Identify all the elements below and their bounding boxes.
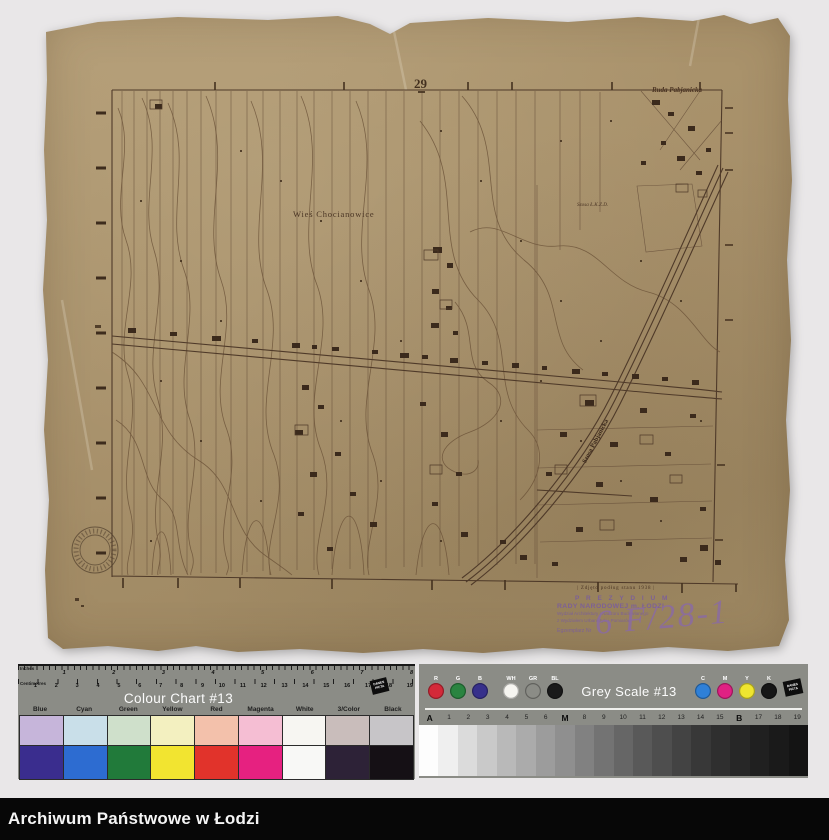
archive-footer: Archiwum Państwowe w Łodzi bbox=[0, 798, 829, 840]
circular-stamp bbox=[72, 527, 118, 573]
grey-step bbox=[614, 725, 633, 776]
centimetres-label: Centimetres bbox=[20, 681, 46, 686]
inch-scale: 12345678 bbox=[18, 666, 415, 679]
paper-background: 29 Ruda Pabjanicka Wieś Chocianowice Szo… bbox=[38, 10, 795, 655]
blue-dot-icon bbox=[472, 683, 488, 699]
ruler: Inches 12345678 Centimetres 123456789101… bbox=[18, 664, 415, 692]
dot-white: WH bbox=[500, 676, 522, 699]
red-dot-icon bbox=[428, 683, 444, 699]
swatch-dark bbox=[370, 746, 413, 779]
survey-note: | Zdjęto podług stanu 1938 | bbox=[577, 586, 655, 591]
grey-scale-header: R G B WH GR BL Grey Scale #13 C M Y K DA… bbox=[419, 664, 808, 706]
village-label: Wieś Chocianowice bbox=[293, 209, 374, 219]
key-dot-icon bbox=[761, 683, 777, 699]
grey-step bbox=[516, 725, 535, 776]
grey-dot-icon bbox=[525, 683, 541, 699]
dot-green: G bbox=[447, 676, 469, 699]
colour-chart-card: Inches 12345678 Centimetres 123456789101… bbox=[18, 664, 415, 779]
parcel-lines bbox=[122, 91, 722, 578]
swatch-light bbox=[239, 716, 282, 745]
swatch-light bbox=[151, 716, 194, 745]
colour-chart-title: Colour Chart #13 bbox=[0, 691, 377, 706]
grey-step bbox=[594, 725, 613, 776]
swatch-light bbox=[283, 716, 326, 745]
grey-step bbox=[555, 725, 574, 776]
dot-yellow: Y bbox=[736, 676, 758, 699]
map-sheet: 29 Ruda Pabjanicka Wieś Chocianowice Szo… bbox=[38, 10, 795, 655]
grey-step bbox=[419, 725, 438, 776]
dot-black: BL bbox=[544, 676, 566, 699]
map-drawing: 29 Ruda Pabjanicka Wieś Chocianowice Szo… bbox=[38, 10, 795, 655]
dot-key: K bbox=[758, 676, 780, 699]
inches-label: Inches bbox=[20, 666, 34, 671]
black-dot-icon bbox=[547, 683, 563, 699]
white-dot-icon bbox=[503, 683, 519, 699]
grey-step bbox=[711, 725, 730, 776]
grey-step bbox=[575, 725, 594, 776]
swatch-dark bbox=[20, 746, 63, 779]
danes-picta-logo: DANES PICTA bbox=[370, 677, 390, 695]
swatch-light bbox=[20, 716, 63, 745]
sheet-number: 29 bbox=[414, 76, 428, 91]
frame-ticks bbox=[96, 113, 106, 553]
grey-step bbox=[497, 725, 516, 776]
swatch-light bbox=[64, 716, 107, 745]
grey-scale-labels: A123456M89101112131415B171819 bbox=[419, 710, 808, 725]
grey-step bbox=[458, 725, 477, 776]
dot-cyan: C bbox=[692, 676, 714, 699]
swatch-dark bbox=[326, 746, 369, 779]
building-outlines bbox=[150, 100, 707, 530]
swatch-dark bbox=[195, 746, 238, 779]
swatch-dark bbox=[108, 746, 151, 779]
swatch-light bbox=[108, 716, 151, 745]
yellow-dot-icon bbox=[739, 683, 755, 699]
grey-step bbox=[652, 725, 671, 776]
grey-step bbox=[769, 725, 788, 776]
corner-label: Ruda Pabjanicka bbox=[651, 86, 702, 94]
stamp-line5: Egzemplarz Nr bbox=[557, 628, 592, 634]
grey-gradient-strip bbox=[419, 725, 808, 776]
danes-picta-logo: DANES PICTA bbox=[783, 678, 804, 696]
grey-step bbox=[536, 725, 555, 776]
swatch-dark bbox=[239, 746, 282, 779]
diagonal-road bbox=[462, 165, 728, 585]
swatch-light bbox=[370, 716, 413, 745]
office-stamp: P R E Z Y D I U M RADY NARODOWEJ m. ŁODZ… bbox=[557, 593, 730, 642]
grey-scale-title: Grey Scale #13 bbox=[566, 676, 692, 699]
cyan-dot-icon bbox=[695, 683, 711, 699]
grey-step bbox=[750, 725, 769, 776]
grey-step bbox=[672, 725, 691, 776]
grey-scale-card: R G B WH GR BL Grey Scale #13 C M Y K DA… bbox=[419, 664, 808, 778]
swatch-light bbox=[326, 716, 369, 745]
grey-step bbox=[691, 725, 710, 776]
dot-grey: GR bbox=[522, 676, 544, 699]
grey-step bbox=[438, 725, 457, 776]
green-dot-icon bbox=[450, 683, 466, 699]
dot-red: R bbox=[425, 676, 447, 699]
road-label-small: Szosa Ł.K.Z.D. bbox=[577, 202, 608, 208]
swatch-dark bbox=[64, 746, 107, 779]
magenta-dot-icon bbox=[717, 683, 733, 699]
dot-blue: B bbox=[469, 676, 491, 699]
archive-name: Archiwum Państwowe w Łodzi bbox=[0, 809, 260, 829]
grey-step bbox=[730, 725, 749, 776]
swatch-dark bbox=[283, 746, 326, 779]
paper-creases bbox=[62, 12, 700, 470]
swatch-dark bbox=[151, 746, 194, 779]
colour-column-labels: BlueCyanGreenYellowRedMagentaWhite3/Colo… bbox=[18, 706, 415, 715]
dot-magenta: M bbox=[714, 676, 736, 699]
grey-step bbox=[477, 725, 496, 776]
grey-step bbox=[633, 725, 652, 776]
colour-swatches bbox=[19, 715, 414, 780]
archive-scan: 29 Ruda Pabjanicka Wieś Chocianowice Szo… bbox=[0, 0, 829, 840]
swatch-light bbox=[195, 716, 238, 745]
grey-step bbox=[789, 725, 808, 776]
